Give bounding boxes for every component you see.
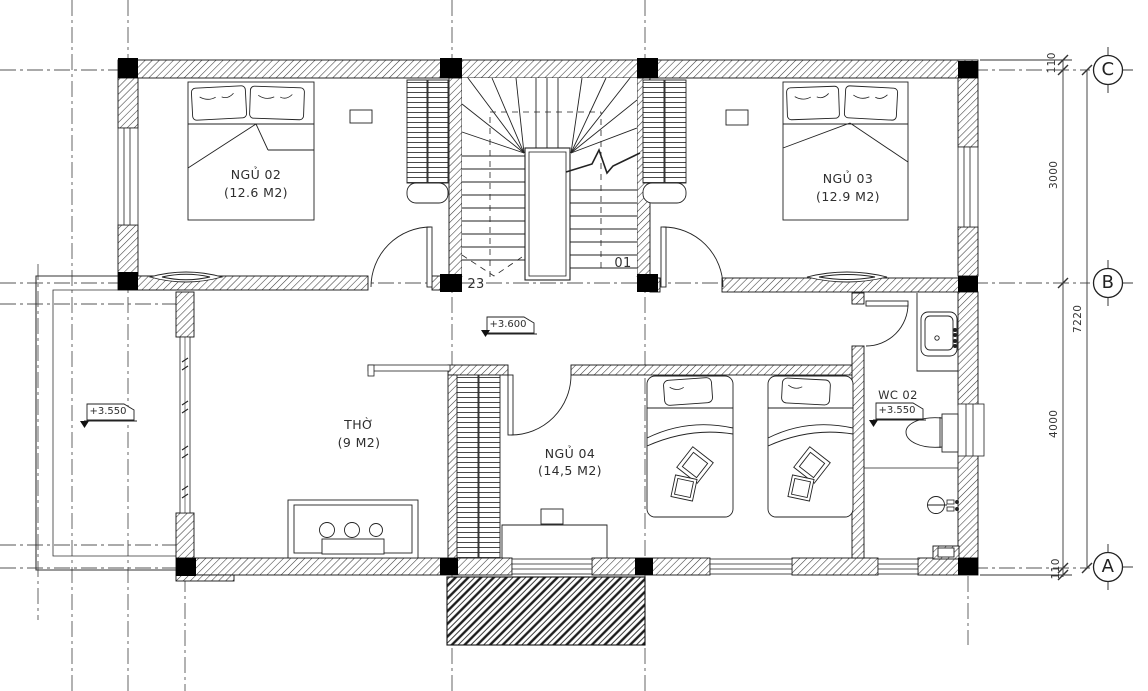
desk (502, 509, 607, 558)
room-area-ngu04: (14,5 M2) (510, 464, 630, 478)
balcony-railing (36, 276, 194, 570)
single-bed-2 (768, 376, 853, 517)
room-label-tho: THỜ (299, 418, 419, 432)
level-marker-hall: +3.600 (489, 319, 527, 330)
altar-table (288, 500, 418, 558)
room-label-wc02: WC 02 (872, 389, 924, 402)
room-label-ngu04: NGỦ 04 (510, 447, 630, 461)
stair-step-top: 01 (609, 257, 637, 271)
sink (921, 312, 957, 356)
dim-c-to-b: 3000 (1049, 153, 1061, 197)
dim-b-to-a: 4000 (1049, 402, 1061, 446)
room-area-ngu02: (12.6 M2) (196, 186, 316, 200)
grid-bubble-a: A (1094, 557, 1122, 578)
canopy-hatch (447, 577, 645, 645)
floor-plan-drawing (0, 0, 1148, 691)
dim-seg-top: 110 (1047, 45, 1059, 81)
dim-seg-bottom: 110 (1051, 551, 1063, 587)
level-marker-balcony: +3.550 (89, 406, 127, 417)
grid-bubble-b: B (1094, 273, 1122, 294)
dim-total: 7220 (1073, 297, 1085, 341)
stair-step-bottom: 23 (462, 278, 490, 292)
floor-plan: NGỦ 02 (12.6 M2) NGỦ 03 (12.9 M2) THỜ (9… (0, 0, 1148, 691)
wc-fixtures (864, 293, 959, 557)
grid-bubbles (1094, 47, 1134, 590)
level-marker-wc: +3.550 (878, 405, 916, 416)
stairs (462, 78, 640, 280)
grid-bubble-c: C (1094, 60, 1122, 81)
room-label-ngu03: NGỦ 03 (788, 172, 908, 186)
wall-ledge (368, 365, 450, 376)
single-bed-1 (647, 376, 733, 517)
sliding-door (180, 337, 190, 513)
nightstand-ngu03 (726, 110, 748, 125)
room-area-ngu03: (12.9 M2) (788, 190, 908, 204)
shower-head (927, 497, 959, 514)
room-area-tho: (9 M2) (299, 436, 419, 450)
room-label-ngu02: NGỦ 02 (196, 168, 316, 182)
nightstand-ngu02 (350, 110, 372, 123)
